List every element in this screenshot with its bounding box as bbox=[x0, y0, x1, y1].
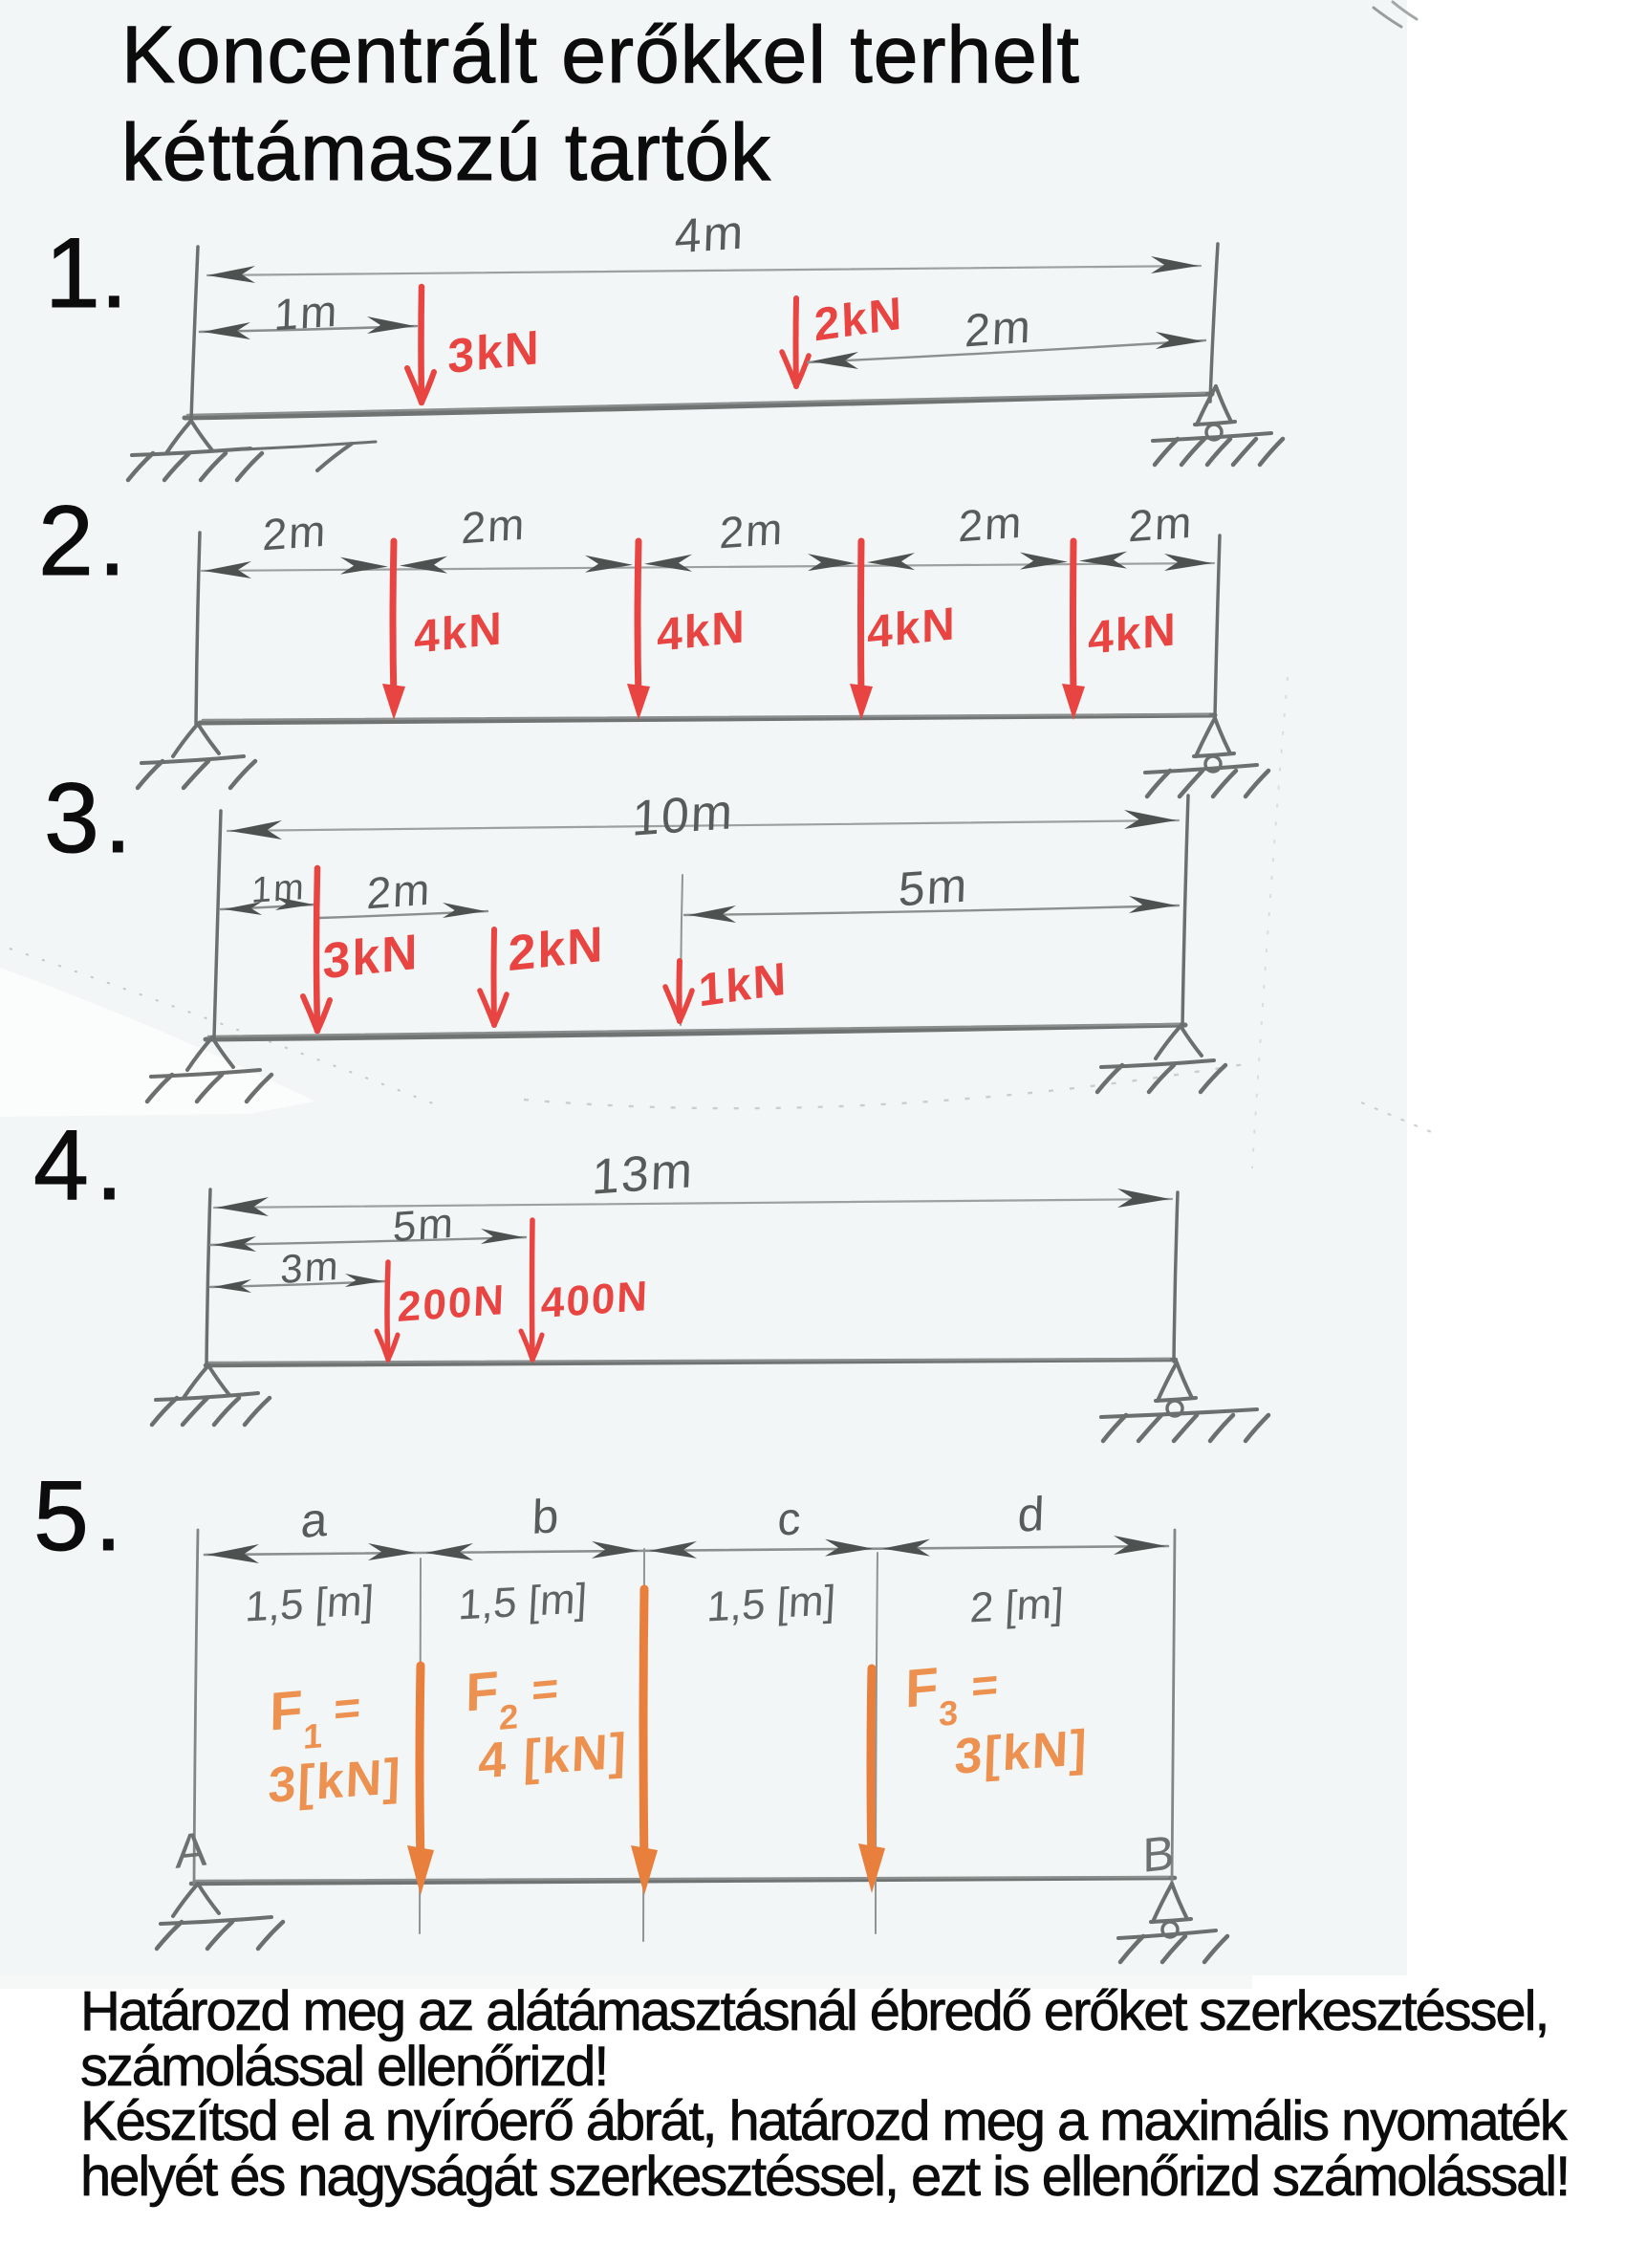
svg-text:B: B bbox=[1142, 1825, 1176, 1883]
svg-text:=: = bbox=[971, 1659, 1001, 1713]
svg-text:5m: 5m bbox=[898, 858, 969, 916]
svg-text:4kN: 4kN bbox=[657, 600, 747, 662]
svg-text:4m: 4m bbox=[674, 205, 746, 263]
svg-text:2m: 2m bbox=[964, 300, 1032, 357]
svg-text:2 [m]: 2 [m] bbox=[969, 1580, 1065, 1631]
svg-text:1m: 1m bbox=[250, 867, 306, 911]
svg-text:1: 1 bbox=[303, 1715, 325, 1756]
svg-text:4 [kN]: 4 [kN] bbox=[478, 1723, 629, 1789]
svg-text:A: A bbox=[175, 1821, 208, 1879]
svg-text:10m: 10m bbox=[631, 784, 735, 847]
svg-text:3kN: 3kN bbox=[323, 925, 420, 991]
svg-text:3[kN]: 3[kN] bbox=[954, 1720, 1090, 1785]
svg-text:F: F bbox=[466, 1659, 501, 1722]
svg-text:1,5 [m]: 1,5 [m] bbox=[457, 1575, 588, 1628]
svg-text:F: F bbox=[270, 1678, 305, 1741]
svg-text:1,5 [m]: 1,5 [m] bbox=[244, 1577, 375, 1630]
svg-text:=: = bbox=[531, 1663, 561, 1717]
svg-text:3[kN]: 3[kN] bbox=[268, 1749, 403, 1814]
svg-text:2m: 2m bbox=[1128, 497, 1195, 552]
svg-text:=: = bbox=[334, 1682, 363, 1736]
svg-text:d: d bbox=[1017, 1487, 1048, 1542]
svg-text:13m: 13m bbox=[591, 1143, 695, 1206]
svg-text:2m: 2m bbox=[958, 497, 1025, 552]
svg-text:F: F bbox=[905, 1655, 941, 1718]
svg-text:3m: 3m bbox=[280, 1243, 341, 1292]
svg-text:2m: 2m bbox=[262, 506, 329, 560]
svg-text:2kN: 2kN bbox=[509, 917, 605, 983]
svg-text:200N: 200N bbox=[397, 1276, 507, 1331]
svg-text:400N: 400N bbox=[540, 1273, 650, 1327]
svg-text:4kN: 4kN bbox=[414, 602, 504, 664]
svg-text:1m: 1m bbox=[273, 286, 340, 340]
svg-text:3kN: 3kN bbox=[447, 320, 540, 383]
svg-text:2m: 2m bbox=[461, 499, 528, 554]
svg-text:c: c bbox=[777, 1493, 804, 1546]
svg-text:5m: 5m bbox=[392, 1200, 456, 1252]
svg-text:1,5 [m]: 1,5 [m] bbox=[705, 1577, 836, 1630]
svg-text:2m: 2m bbox=[719, 504, 786, 558]
svg-text:b: b bbox=[531, 1489, 562, 1544]
svg-text:2m: 2m bbox=[366, 864, 433, 919]
svg-text:3: 3 bbox=[939, 1692, 961, 1734]
svg-text:a: a bbox=[300, 1493, 331, 1548]
svg-text:4kN: 4kN bbox=[1088, 603, 1178, 665]
svg-text:4kN: 4kN bbox=[867, 598, 957, 659]
